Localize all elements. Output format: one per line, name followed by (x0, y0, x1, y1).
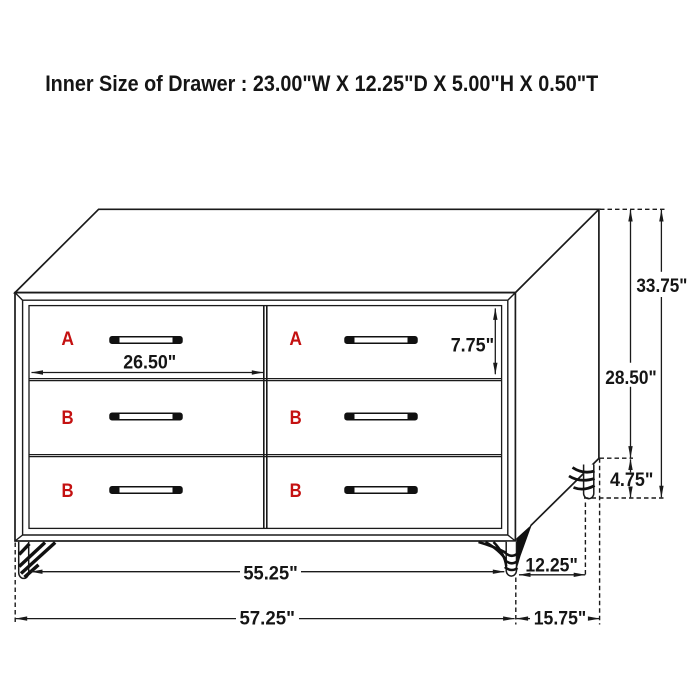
svg-text:12.25": 12.25" (525, 555, 578, 577)
svg-text:B: B (61, 481, 73, 502)
svg-text:28.50": 28.50" (605, 367, 657, 389)
svg-text:A: A (289, 329, 302, 350)
svg-text:4.75": 4.75" (610, 469, 654, 491)
svg-text:B: B (61, 408, 73, 429)
svg-text:7.75": 7.75" (451, 334, 495, 356)
svg-text:B: B (290, 481, 302, 502)
svg-text:57.25": 57.25" (239, 607, 295, 629)
svg-text:55.25": 55.25" (243, 562, 298, 584)
svg-text:26.50": 26.50" (123, 352, 176, 374)
svg-text:B: B (290, 408, 302, 429)
svg-text:33.75": 33.75" (636, 275, 687, 297)
svg-text:Inner Size of Drawer : 23.00"W: Inner Size of Drawer : 23.00"W X 12.25"D… (45, 71, 599, 96)
svg-text:A: A (61, 329, 74, 350)
svg-text:15.75": 15.75" (534, 607, 587, 629)
